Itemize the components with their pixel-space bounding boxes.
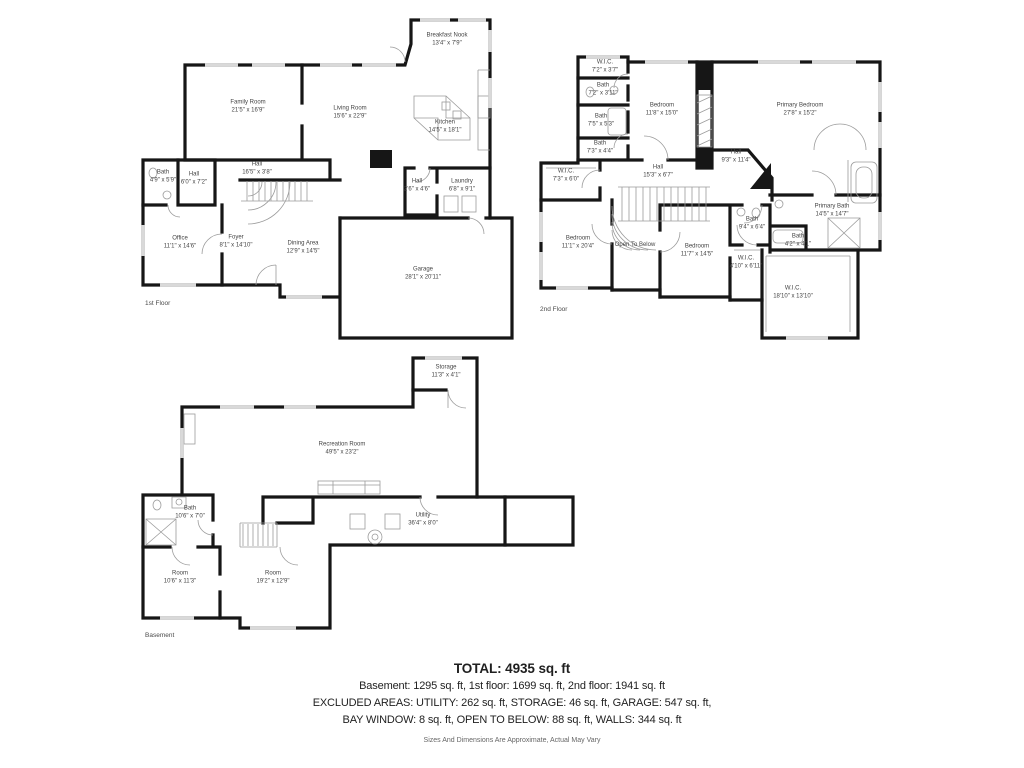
room-label-utility: Utility36'4" x 8'0" — [408, 512, 438, 529]
summary-floor-areas: Basement: 1295 sq. ft, 1st floor: 1699 s… — [0, 678, 1024, 695]
room-label-garage: Garage28'1" x 20'11" — [405, 266, 441, 283]
room-label-foyer: Foyer8'1" x 14'10" — [220, 234, 253, 251]
summary-excluded-areas-1: EXCLUDED AREAS: UTILITY: 262 sq. ft, STO… — [0, 695, 1024, 712]
floor-label-1st-floor: 1st Floor — [145, 300, 170, 307]
room-label-bath: Bath4'2" x 4'1" — [785, 233, 811, 250]
room-label-office: Office11'1" x 14'6" — [164, 235, 196, 252]
room-label-hall: Hall9'3" x 11'4" — [721, 149, 750, 166]
room-label-storage: Storage11'3" x 4'1" — [431, 364, 460, 381]
room-label-w-i-c: W.I.C.4'10" x 6'11" — [730, 255, 762, 272]
room-label-recreation-room: Recreation Room49'5" x 23'2" — [319, 441, 366, 458]
room-label-room: Room10'6" x 11'3" — [164, 570, 196, 587]
room-label-primary-bath: Primary Bath14'5" x 14'7" — [815, 203, 850, 220]
room-label-w-i-c: W.I.C.7'3" x 6'0" — [553, 168, 579, 185]
room-label-laundry: Laundry6'8" x 9'1" — [449, 178, 475, 195]
floorplan-page: Breakfast Nook13'4" x 7'9"Family Room21'… — [0, 0, 1024, 768]
room-label-primary-bedroom: Primary Bedroom27'8" x 15'2" — [777, 102, 824, 119]
floor-label-basement: Basement — [145, 632, 174, 639]
room-label-kitchen: Kitchen14'5" x 18'1" — [429, 119, 462, 136]
room-label-dining-area: Dining Area12'9" x 14'5" — [287, 240, 320, 257]
room-label-hall: Hall2'6" x 4'6" — [404, 178, 430, 195]
room-label-bath: Bath10'6" x 7'0" — [175, 505, 205, 522]
room-label-family-room: Family Room21'5" x 16'9" — [230, 99, 265, 116]
room-label-hall: Hall6'0" x 7'2" — [181, 171, 207, 188]
room-label-hall: Hall16'5" x 3'8" — [242, 161, 272, 178]
summary-block: TOTAL: 4935 sq. ft Basement: 1295 sq. ft… — [0, 659, 1024, 744]
room-label-living-room: Living Room15'6" x 22'9" — [333, 105, 366, 122]
room-label-open-to-below: Open To Below — [615, 241, 656, 249]
room-label-bedroom: Bedroom11'7" x 14'5" — [681, 243, 713, 260]
room-label-bath: Bath7'5" x 5'3" — [588, 113, 614, 130]
room-label-hall: Hall15'3" x 6'7" — [643, 164, 673, 181]
room-label-w-i-c: W.I.C.18'10" x 13'10" — [773, 285, 813, 302]
room-label-bath: Bath4'9" x 5'9" — [150, 169, 176, 186]
summary-excluded-areas-2: BAY WINDOW: 8 sq. ft, OPEN TO BELOW: 88 … — [0, 712, 1024, 729]
floor-label-2nd-floor: 2nd Floor — [540, 306, 567, 313]
room-label-bath: Bath9'4" x 6'4" — [739, 216, 765, 233]
room-label-bedroom: Bedroom11'8" x 15'0" — [646, 102, 678, 119]
room-label-bedroom: Bedroom11'1" x 20'4" — [562, 235, 594, 252]
room-label-breakfast-nook: Breakfast Nook13'4" x 7'9" — [426, 32, 467, 49]
room-label-room: Room19'2" x 12'9" — [257, 570, 290, 587]
room-label-bath: Bath7'3" x 4'4" — [587, 140, 613, 157]
room-label-bath: Bath7'2" x 3'11" — [588, 82, 617, 99]
summary-disclaimer: Sizes And Dimensions Are Approximate, Ac… — [0, 737, 1024, 744]
summary-total: TOTAL: 4935 sq. ft — [0, 659, 1024, 678]
room-labels-layer: Breakfast Nook13'4" x 7'9"Family Room21'… — [0, 0, 1024, 768]
room-label-w-i-c: W.I.C.7'2" x 3'7" — [592, 59, 618, 76]
